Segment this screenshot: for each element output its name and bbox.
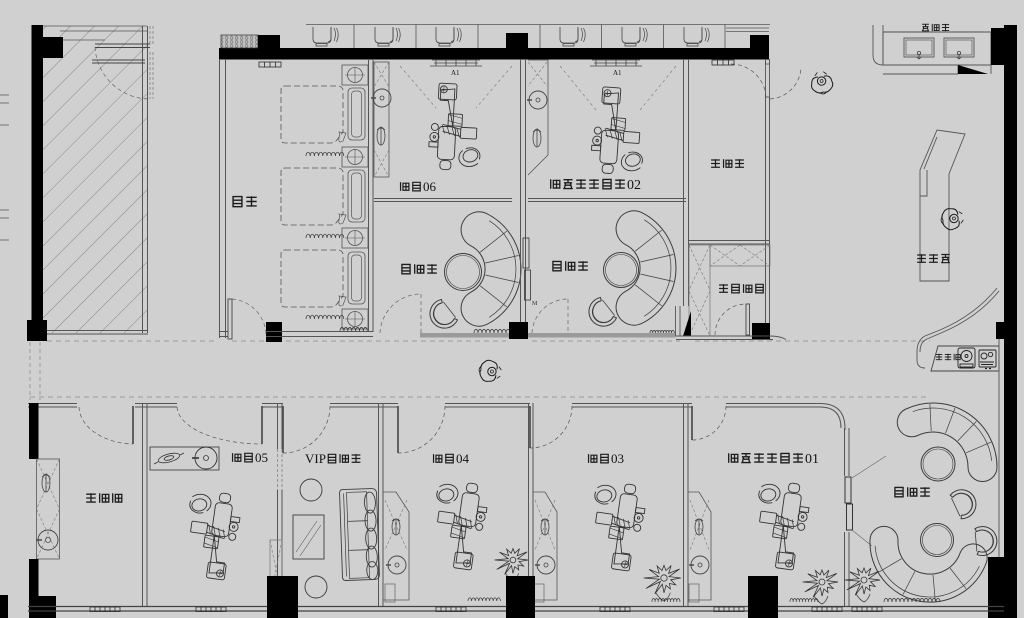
svg-text:04: 04 xyxy=(456,451,470,466)
svg-text:A1: A1 xyxy=(451,69,460,77)
svg-text:01: 01 xyxy=(805,452,819,467)
svg-text:06: 06 xyxy=(423,179,437,194)
svg-text:A1: A1 xyxy=(613,69,622,77)
svg-text:VIP: VIP xyxy=(305,451,326,466)
svg-text:03: 03 xyxy=(611,451,624,466)
svg-text:M: M xyxy=(532,301,538,307)
svg-text:05: 05 xyxy=(255,450,268,465)
svg-text:02: 02 xyxy=(627,178,641,193)
